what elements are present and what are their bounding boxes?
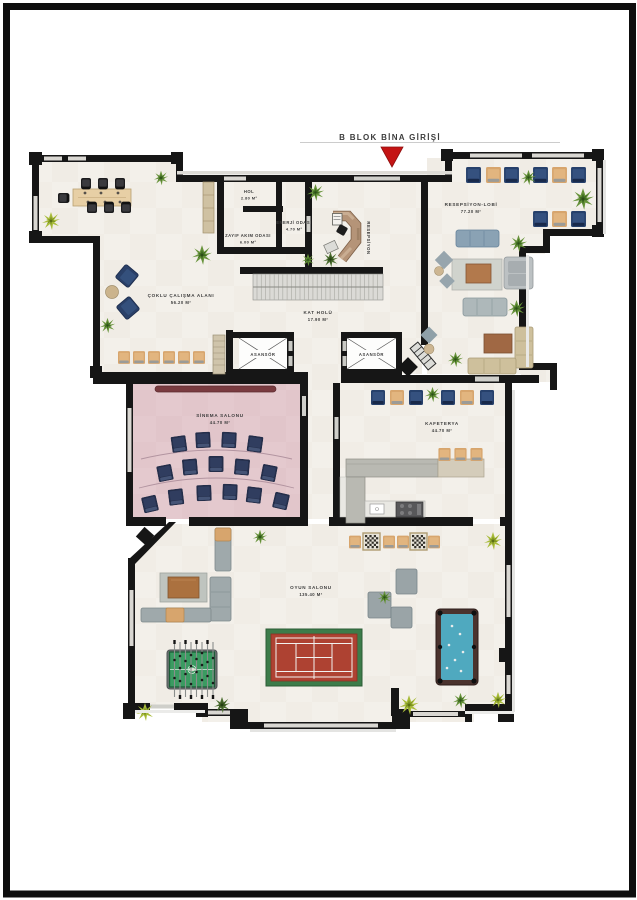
svg-text:HOL: HOL: [244, 189, 254, 194]
svg-text:KAT HOLÜ: KAT HOLÜ: [304, 309, 333, 315]
svg-text:77.20 M²: 77.20 M²: [461, 209, 482, 214]
svg-text:ASANSÖR: ASANSÖR: [359, 352, 384, 357]
svg-text:135.40 M²: 135.40 M²: [299, 592, 322, 597]
svg-text:ASANSÖR: ASANSÖR: [250, 352, 275, 357]
svg-text:ENERJİ ODASI: ENERJİ ODASI: [276, 220, 312, 225]
svg-text:44.70 M²: 44.70 M²: [432, 428, 453, 433]
svg-text:2.80 M²: 2.80 M²: [241, 196, 258, 201]
svg-text:RESEPSİYON: RESEPSİYON: [366, 221, 371, 254]
svg-text:B BLOK BİNA GİRİŞİ: B BLOK BİNA GİRİŞİ: [339, 133, 441, 142]
svg-text:4.70 M²: 4.70 M²: [286, 227, 303, 232]
svg-text:ZAYIF AKIM ODASI: ZAYIF AKIM ODASI: [225, 233, 271, 238]
svg-text:ÇOKLU ÇALIŞMA ALANI: ÇOKLU ÇALIŞMA ALANI: [148, 293, 215, 298]
svg-text:6.00 M²: 6.00 M²: [240, 240, 257, 245]
svg-text:KAFETERYA: KAFETERYA: [425, 421, 459, 426]
svg-text:OYUN SALONU: OYUN SALONU: [290, 585, 332, 590]
svg-text:SİNEMA SALONU: SİNEMA SALONU: [196, 412, 243, 418]
svg-text:56.20 M²: 56.20 M²: [171, 300, 192, 305]
svg-text:44.70 M²: 44.70 M²: [210, 420, 231, 425]
svg-text:17.90 M²: 17.90 M²: [308, 317, 329, 322]
svg-text:RESEPSİYON-LOBİ: RESEPSİYON-LOBİ: [445, 201, 498, 207]
